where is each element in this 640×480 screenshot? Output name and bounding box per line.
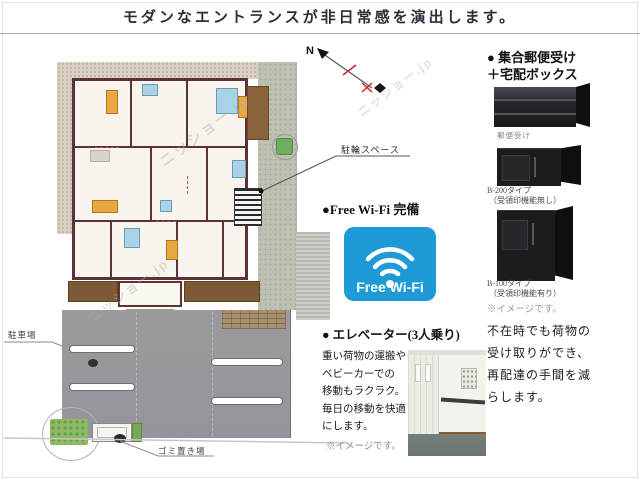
compass-north-label: N <box>306 45 314 57</box>
elevator-control-panel <box>461 368 477 389</box>
parking-label: 駐車場 <box>8 329 37 341</box>
delivery-box-b-handle <box>532 223 534 245</box>
delivery-box-a-handle <box>534 157 536 177</box>
wifi-heading: ●Free Wi-Fi 完備 <box>322 199 419 218</box>
mail-description: 不在時でも荷物の 受け取りができ、 再配達の手間を減 らします。 <box>487 320 619 408</box>
wifi-icon <box>344 229 436 281</box>
compass-red-tick <box>343 65 356 75</box>
elevator-door-window <box>425 364 431 382</box>
compass-black-diamond <box>374 83 386 93</box>
mailbox-side <box>576 83 590 127</box>
mailbox-front <box>494 87 576 127</box>
elevator-note: ※イメージです。 <box>326 438 401 452</box>
elevator-door <box>408 355 439 434</box>
mailbox-image <box>494 83 592 129</box>
delivery-box-b-side <box>555 206 573 280</box>
elevator-photo <box>408 350 486 456</box>
delivery-box-b-front <box>497 210 555 281</box>
delivery-box-a-front <box>497 148 561 186</box>
delivery-box-b-door <box>502 220 528 250</box>
mail-note: ※イメージです。 <box>487 301 562 315</box>
mail-heading-line2: ＋宅配ボックス <box>487 64 578 83</box>
free-wifi-badge: Free Wi-Fi <box>344 227 436 301</box>
delivery-box-a-image <box>497 145 583 185</box>
bicycle-label: 駐輪スペース <box>341 143 400 156</box>
elevator-description: 重い荷物の運搬や ベビーカーでの 移動もラクラク。 毎日の移動を快適 にします。 <box>322 348 418 436</box>
bicycle-leader-dot <box>259 189 264 194</box>
elevator-door-window <box>415 364 421 382</box>
mailbox-caption: 郵便受け <box>497 130 531 141</box>
compass-line <box>322 53 372 88</box>
parking-leader-line <box>4 342 62 346</box>
delivery-box-a-door <box>502 155 530 181</box>
delivery-box-b-image <box>497 206 577 280</box>
mailbox-slot-line <box>494 99 576 101</box>
wifi-badge-label: Free Wi-Fi <box>344 279 436 295</box>
elevator-floor <box>408 434 486 456</box>
delivery-box-a-side <box>561 145 581 185</box>
mailbox-slot-line <box>494 113 576 115</box>
garbage-label: ゴミ置き場 <box>158 445 206 457</box>
delivery-box-b-caption2: （受領印機能有り） <box>489 288 561 299</box>
road-edge-line <box>4 438 348 443</box>
elevator-back-wall <box>439 355 486 434</box>
elevator-handrail <box>441 397 485 404</box>
delivery-box-a-caption2: （受領印機能無し） <box>489 195 561 206</box>
bicycle-leader-line <box>262 156 336 191</box>
elevator-heading: ● エレベーター(3人乗り) <box>322 324 460 343</box>
